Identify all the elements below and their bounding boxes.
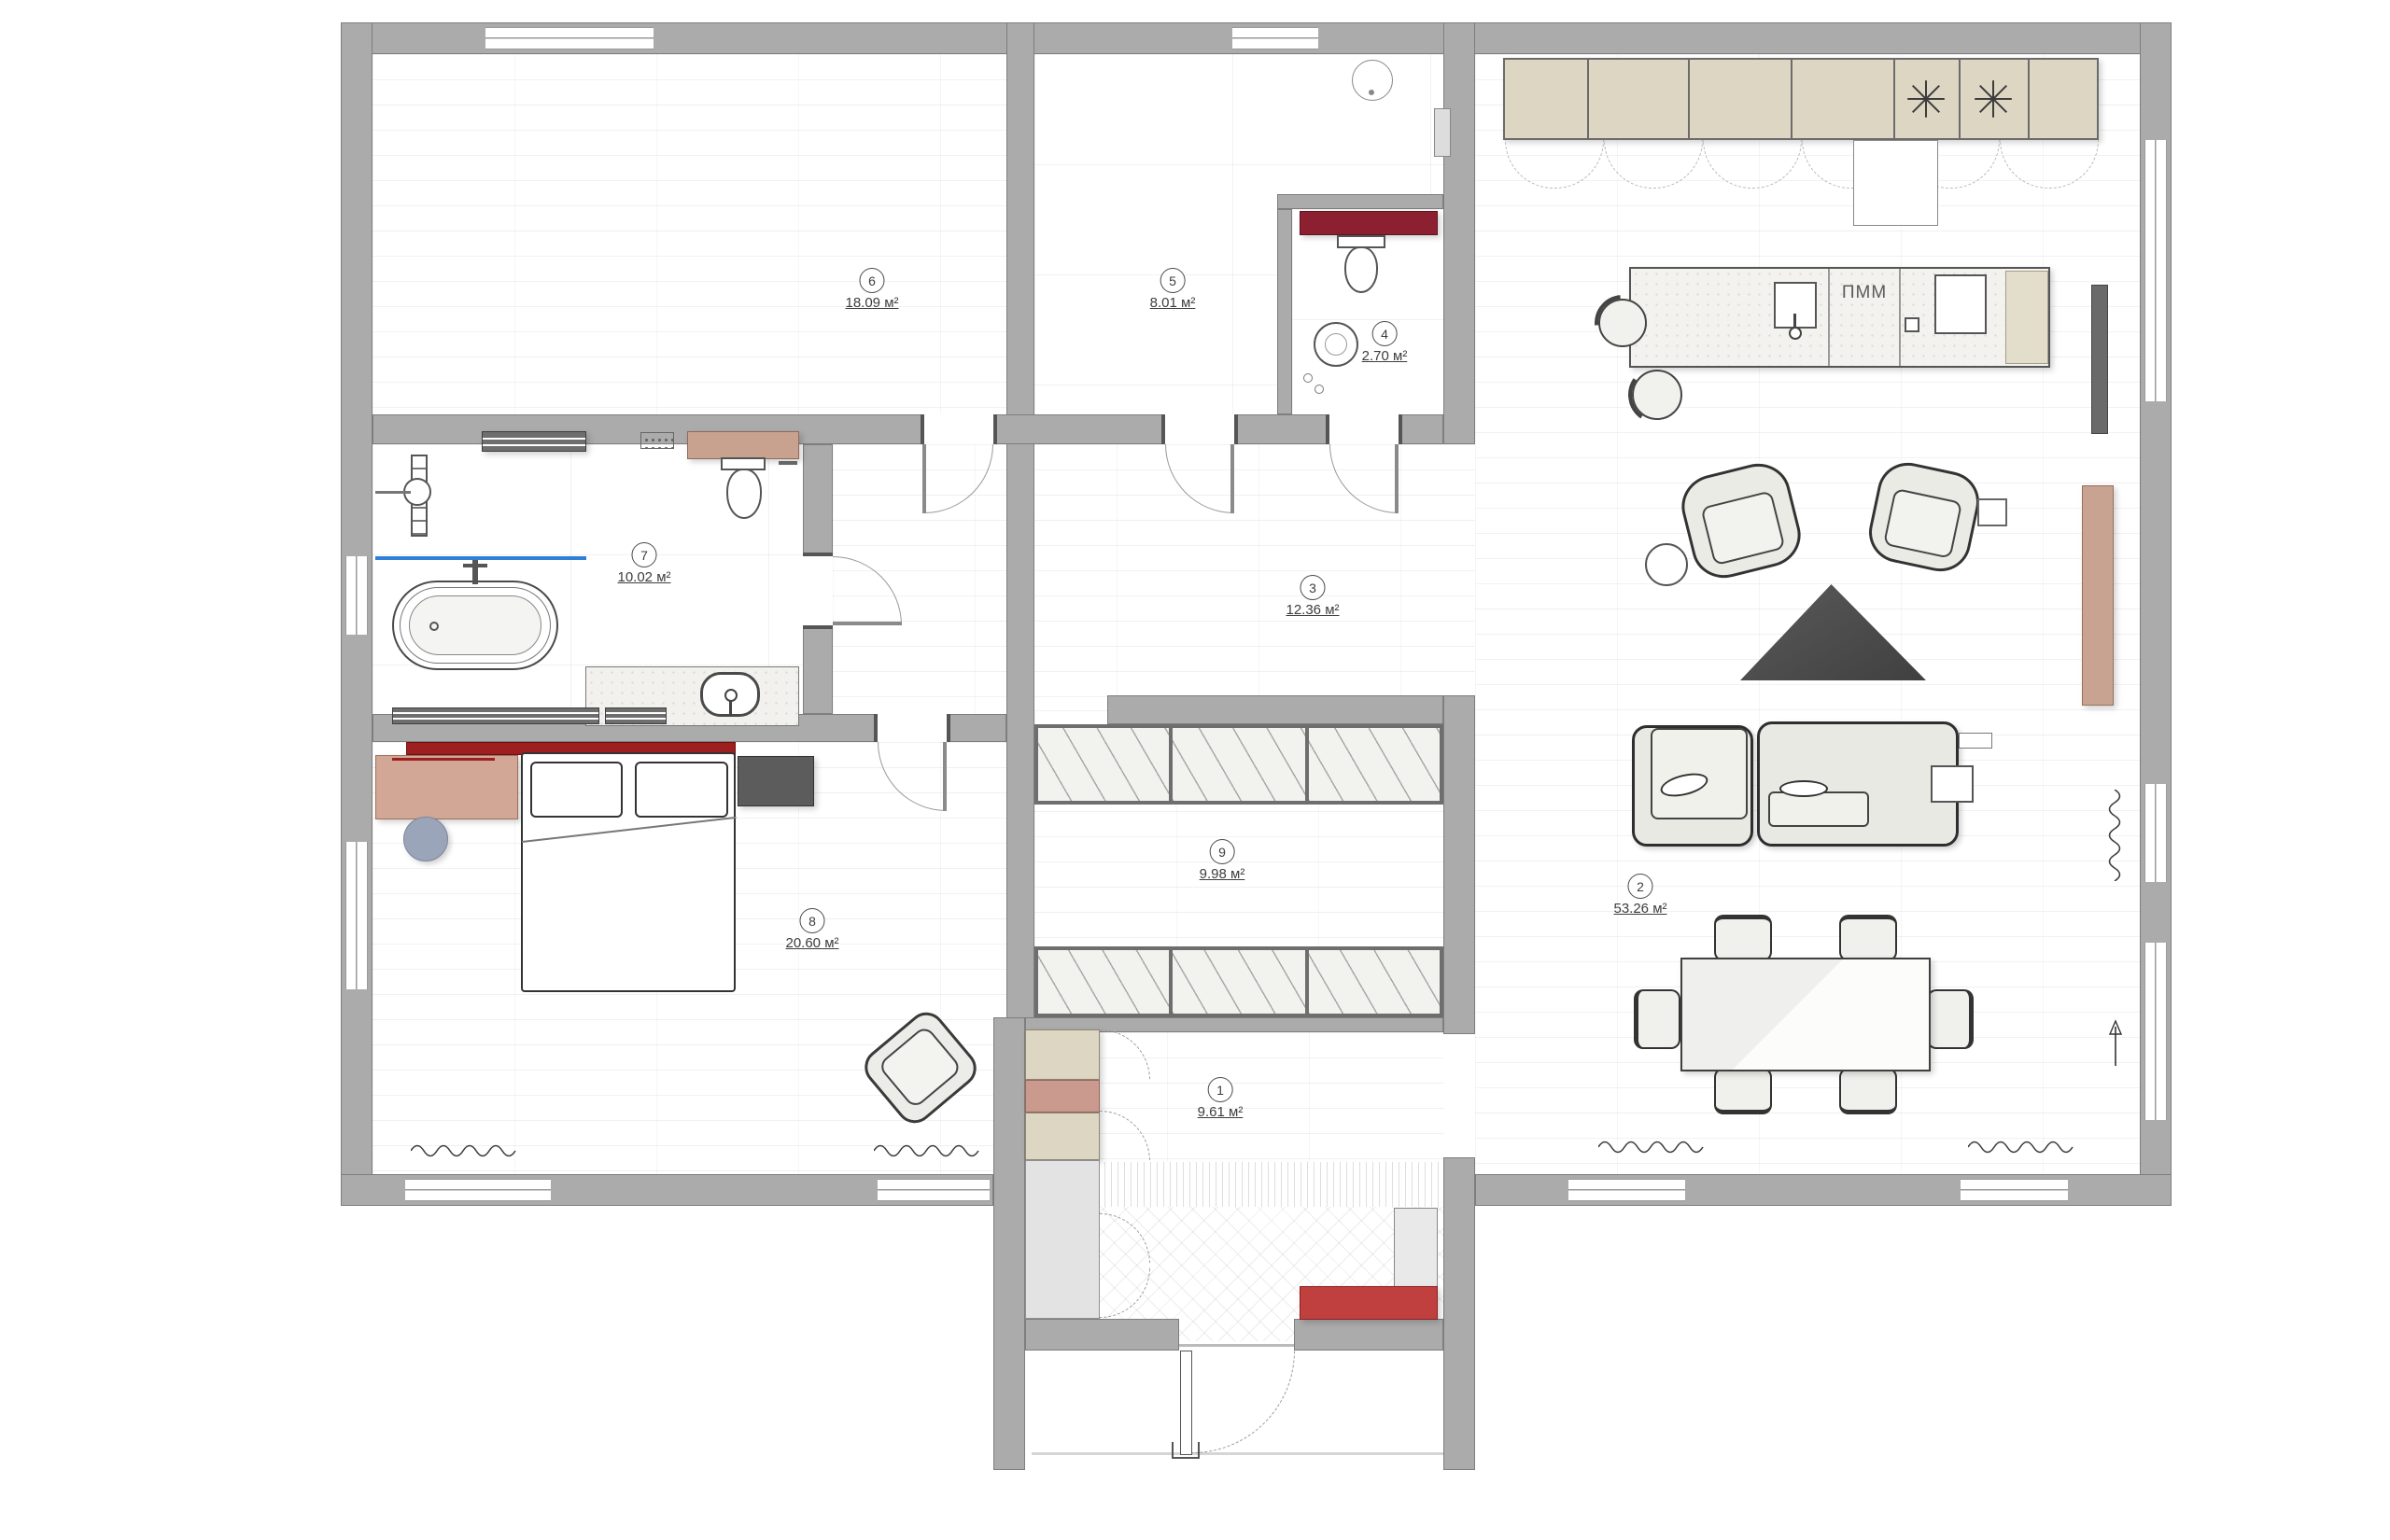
entry-cabinet-beige-top xyxy=(1025,1029,1100,1080)
door-opening-wc xyxy=(1329,414,1399,444)
kitchen-tall-unit xyxy=(1853,140,1938,226)
island-divider xyxy=(1828,269,1830,366)
door-jamb xyxy=(921,414,924,444)
window-living-right-2 xyxy=(2144,784,2167,882)
room-number-badge: 4 xyxy=(1371,321,1397,346)
wall-corridor-band-4 xyxy=(1399,414,1443,444)
door-leaf-bathroom xyxy=(833,622,902,625)
floor-plan: ПММ xyxy=(0,0,2390,1540)
wall-spine-room6-wardrobe xyxy=(1006,22,1034,1034)
tv-console xyxy=(2082,485,2114,706)
vestibule-step-line xyxy=(1032,1452,1443,1455)
window-bathroom-left xyxy=(345,556,368,635)
lamp-dot xyxy=(1369,90,1374,95)
cabinet-divider xyxy=(1893,58,1895,140)
radiator-wave-vertical xyxy=(2108,790,2121,881)
entry-door-stop xyxy=(1172,1442,1200,1459)
entry-door-threshold xyxy=(1179,1344,1294,1347)
island-sink-faucet-stem xyxy=(1793,314,1796,329)
window-living-right-1 xyxy=(2144,140,2167,401)
island-hob xyxy=(1934,274,1987,334)
door-jamb xyxy=(874,714,878,742)
hygiene-shower xyxy=(779,461,797,465)
room-number-badge: 5 xyxy=(1160,268,1185,293)
wall-entry-bottom-right xyxy=(1294,1319,1443,1351)
cabinet-divider xyxy=(2028,58,2030,140)
door-jamb xyxy=(1326,414,1329,444)
bed-pillow xyxy=(530,762,623,818)
entry-cabinet-beige-bottom xyxy=(1025,1113,1100,1160)
window-living-bottom-2 xyxy=(1961,1179,2068,1201)
window-bedroom-left xyxy=(345,842,368,989)
window-living-right-3 xyxy=(2144,943,2167,1120)
washing-machine-door xyxy=(1325,333,1347,356)
radiator-wave xyxy=(1598,1141,1705,1154)
wall-wc-left xyxy=(1277,209,1292,414)
radiator-pipe xyxy=(375,491,411,494)
dining-chair xyxy=(1714,1068,1772,1114)
nightstand-dark xyxy=(738,756,814,806)
sofa-seat-cushion xyxy=(1768,791,1869,827)
door-jamb xyxy=(1234,414,1238,444)
door-jamb xyxy=(1399,414,1402,444)
door-jamb xyxy=(803,553,833,556)
room-label-7: 7 10.02 м² xyxy=(617,542,670,585)
room-number-badge: 8 xyxy=(799,908,824,933)
entry-doormat xyxy=(1104,1162,1443,1207)
door-swing-entry xyxy=(1192,1351,1295,1453)
wc-accessory xyxy=(1314,385,1324,394)
door-leaf-entry xyxy=(1180,1351,1192,1455)
radiator-wave xyxy=(874,1144,980,1157)
wardrobe-unit-bottom xyxy=(1034,946,1443,1017)
room-area: 20.60 м² xyxy=(785,935,838,951)
room-label-4: 4 2.70 м² xyxy=(1362,321,1408,364)
wardrobe-divider xyxy=(1169,724,1173,805)
wall-unit xyxy=(1434,108,1451,157)
room-label-9: 9 9.98 м² xyxy=(1200,839,1245,882)
room-area: 10.02 м² xyxy=(617,569,670,585)
room-number-badge: 6 xyxy=(859,268,884,293)
room-number-badge: 3 xyxy=(1300,575,1325,600)
dining-chair xyxy=(1927,989,1974,1049)
window-room5-top xyxy=(1232,27,1318,49)
cabinet-divider xyxy=(1791,58,1792,140)
room-area: 18.09 м² xyxy=(845,295,898,311)
tv-panel-dark xyxy=(2091,285,2108,434)
door-leaf-wc xyxy=(1395,444,1399,513)
bathtub-faucet-handle xyxy=(463,564,487,567)
room-area: 8.01 м² xyxy=(1150,295,1196,311)
wall-bedroom-top-stub xyxy=(947,714,1006,742)
dining-chair xyxy=(1634,989,1680,1049)
wardrobe-divider xyxy=(1305,946,1309,1017)
room-area: 9.61 м² xyxy=(1198,1104,1244,1120)
radiator-wave xyxy=(411,1144,517,1157)
entry-cabinet-gray xyxy=(1025,1160,1100,1319)
wardrobe-divider xyxy=(1169,946,1173,1017)
wall-entry-bottom-left xyxy=(1025,1319,1179,1351)
wardrobe-unit-top xyxy=(1034,724,1443,805)
door-opening-bedroom xyxy=(878,714,947,742)
wall-wardrobe-top xyxy=(1107,695,1443,724)
wall-entry-left xyxy=(993,1017,1025,1470)
window-room6-top xyxy=(485,27,654,49)
window-bedroom-bottom-2 xyxy=(878,1179,990,1201)
dining-chair xyxy=(1839,915,1897,961)
room-number-badge: 9 xyxy=(1209,839,1234,864)
heating-line-blue xyxy=(375,556,586,560)
cabinet-divider xyxy=(1688,58,1690,140)
wall-entry-right xyxy=(1443,1157,1475,1470)
dining-chair xyxy=(1839,1068,1897,1114)
sink-faucet-stem xyxy=(729,700,732,715)
room-label-6: 6 18.09 м² xyxy=(845,268,898,311)
bathtub-drain xyxy=(429,622,439,631)
wardrobe-divider xyxy=(1305,724,1309,805)
vent-grille xyxy=(640,432,674,449)
entry-cabinet-pink xyxy=(1025,1080,1100,1113)
bathroom-wall-shelf xyxy=(482,431,586,452)
cabinet-divider xyxy=(1587,58,1589,140)
wall-bathroom-right-upper xyxy=(803,444,833,556)
room-area: 12.36 м² xyxy=(1286,602,1339,618)
island-bench-beige xyxy=(2005,271,2048,364)
square-side-table xyxy=(1977,498,2007,526)
door-opening-room6 xyxy=(924,414,993,444)
door-jamb xyxy=(803,625,833,629)
round-side-table xyxy=(1645,543,1688,586)
door-jamb xyxy=(1161,414,1165,444)
door-jamb xyxy=(993,414,997,444)
window-bedroom-bottom-1 xyxy=(405,1179,551,1201)
door-jamb xyxy=(947,714,950,742)
wall-wardrobe-right xyxy=(1443,695,1475,1034)
wall-bathroom-right-lower xyxy=(803,625,833,714)
wall-corridor-band-3 xyxy=(1234,414,1329,444)
room-area: 9.98 м² xyxy=(1200,866,1245,882)
window-living-bottom-1 xyxy=(1568,1179,1685,1201)
radiator-wave xyxy=(1968,1141,2074,1154)
sofa-ledge xyxy=(1959,733,1992,749)
bedroom-dresser xyxy=(375,755,518,819)
room-label-5: 5 8.01 м² xyxy=(1150,268,1196,311)
wall-wc-top xyxy=(1277,194,1443,209)
floor-convector xyxy=(392,707,599,724)
cabinet-divider xyxy=(1959,58,1961,140)
toilet-bowl xyxy=(726,469,762,519)
room-label-3: 3 12.36 м² xyxy=(1286,575,1339,618)
wc-shelf-red xyxy=(1300,211,1438,235)
room-area: 2.70 м² xyxy=(1362,348,1408,364)
room-number-badge: 7 xyxy=(631,542,656,567)
room-label-2: 2 53.26 м² xyxy=(1613,874,1666,917)
island-socket xyxy=(1905,317,1919,332)
door-opening-room5 xyxy=(1165,414,1234,444)
pouf xyxy=(403,817,448,861)
entry-bench-red xyxy=(1300,1286,1438,1320)
island-sink-faucet xyxy=(1789,327,1802,340)
door-opening-bathroom xyxy=(803,556,833,625)
north-arrow-icon xyxy=(2097,1019,2134,1070)
armchair xyxy=(1863,457,1985,578)
door-leaf-room5 xyxy=(1230,444,1234,513)
dishwasher-label: ПММ xyxy=(1832,283,1897,303)
sofa-pillow xyxy=(1779,780,1828,797)
room-label-8: 8 20.60 м² xyxy=(785,908,838,951)
door-leaf-room6 xyxy=(922,444,926,513)
room-area: 53.26 м² xyxy=(1613,901,1666,917)
bathroom-counter xyxy=(687,431,799,459)
wc-accessory xyxy=(1303,373,1313,383)
dresser-accent-line xyxy=(392,758,495,761)
wall-corridor-band-2 xyxy=(993,414,1165,444)
entry-cabinet-white xyxy=(1394,1208,1438,1290)
door-leaf-bedroom xyxy=(943,742,947,811)
floor-room6 xyxy=(373,54,1006,414)
room-label-1: 1 9.61 м² xyxy=(1198,1077,1244,1120)
dining-table xyxy=(1680,958,1931,1071)
room-number-badge: 1 xyxy=(1207,1077,1232,1102)
snowflake-icon xyxy=(1973,78,2014,119)
sofa-side-table xyxy=(1931,765,1974,803)
bed-pillow xyxy=(635,762,728,818)
island-divider xyxy=(1899,269,1901,366)
toilet-bowl xyxy=(1344,246,1378,293)
dining-chair xyxy=(1714,915,1772,961)
room-number-badge: 2 xyxy=(1627,874,1652,899)
wall-room5-kitchen-divider xyxy=(1443,22,1475,444)
snowflake-icon xyxy=(1905,78,1947,119)
floor-convector xyxy=(605,707,667,724)
